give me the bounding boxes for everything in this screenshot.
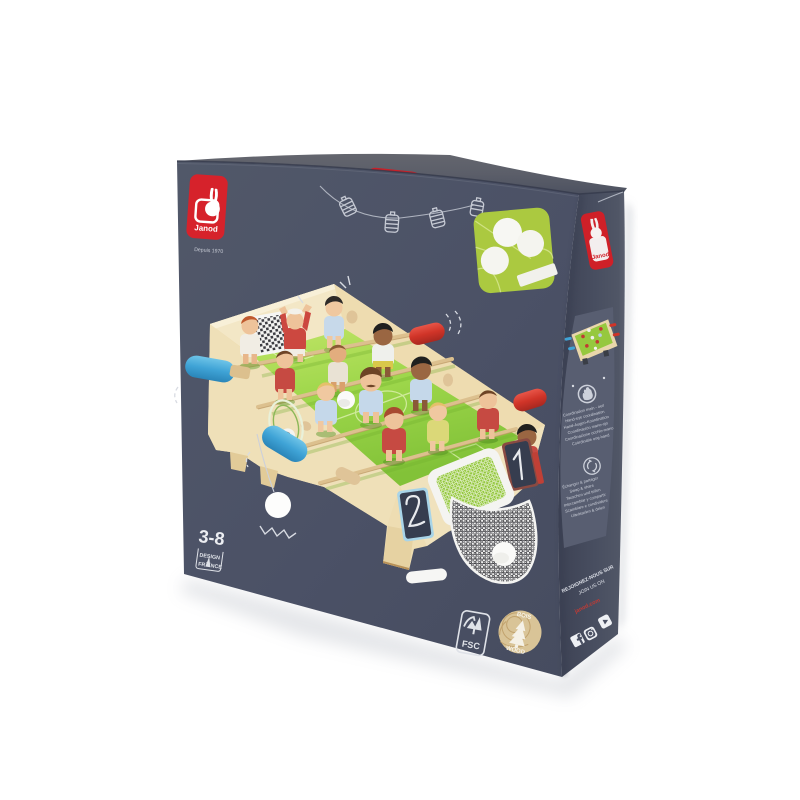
svg-text:3-8: 3-8 — [198, 526, 226, 549]
svg-text:Janod: Janod — [194, 223, 218, 234]
svg-text:FR: FR — [198, 562, 206, 569]
